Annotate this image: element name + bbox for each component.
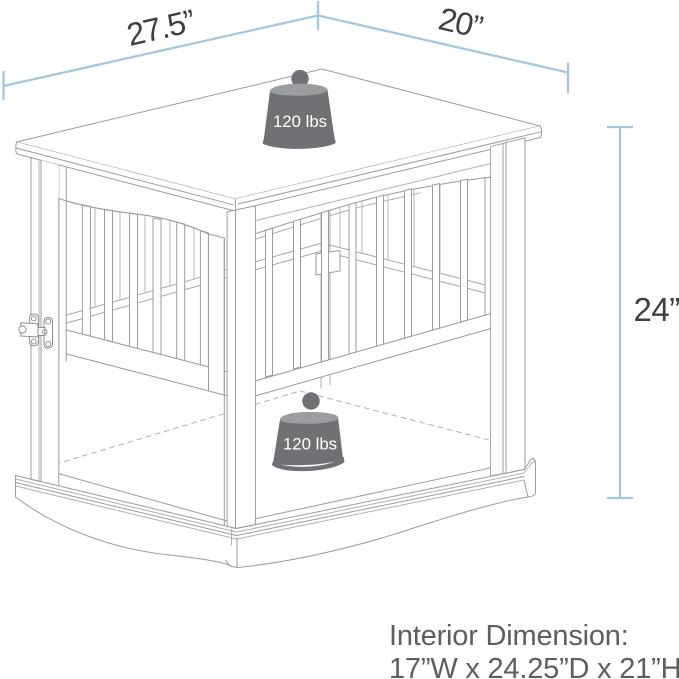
svg-text:120 lbs: 120 lbs	[273, 112, 327, 131]
svg-text:Interior Dimension:: Interior Dimension:	[389, 620, 629, 652]
svg-text:24”: 24”	[634, 291, 679, 328]
svg-text:17”W x 24.25”D x 21”H: 17”W x 24.25”D x 21”H	[389, 653, 679, 679]
svg-text:120 lbs: 120 lbs	[283, 435, 337, 454]
